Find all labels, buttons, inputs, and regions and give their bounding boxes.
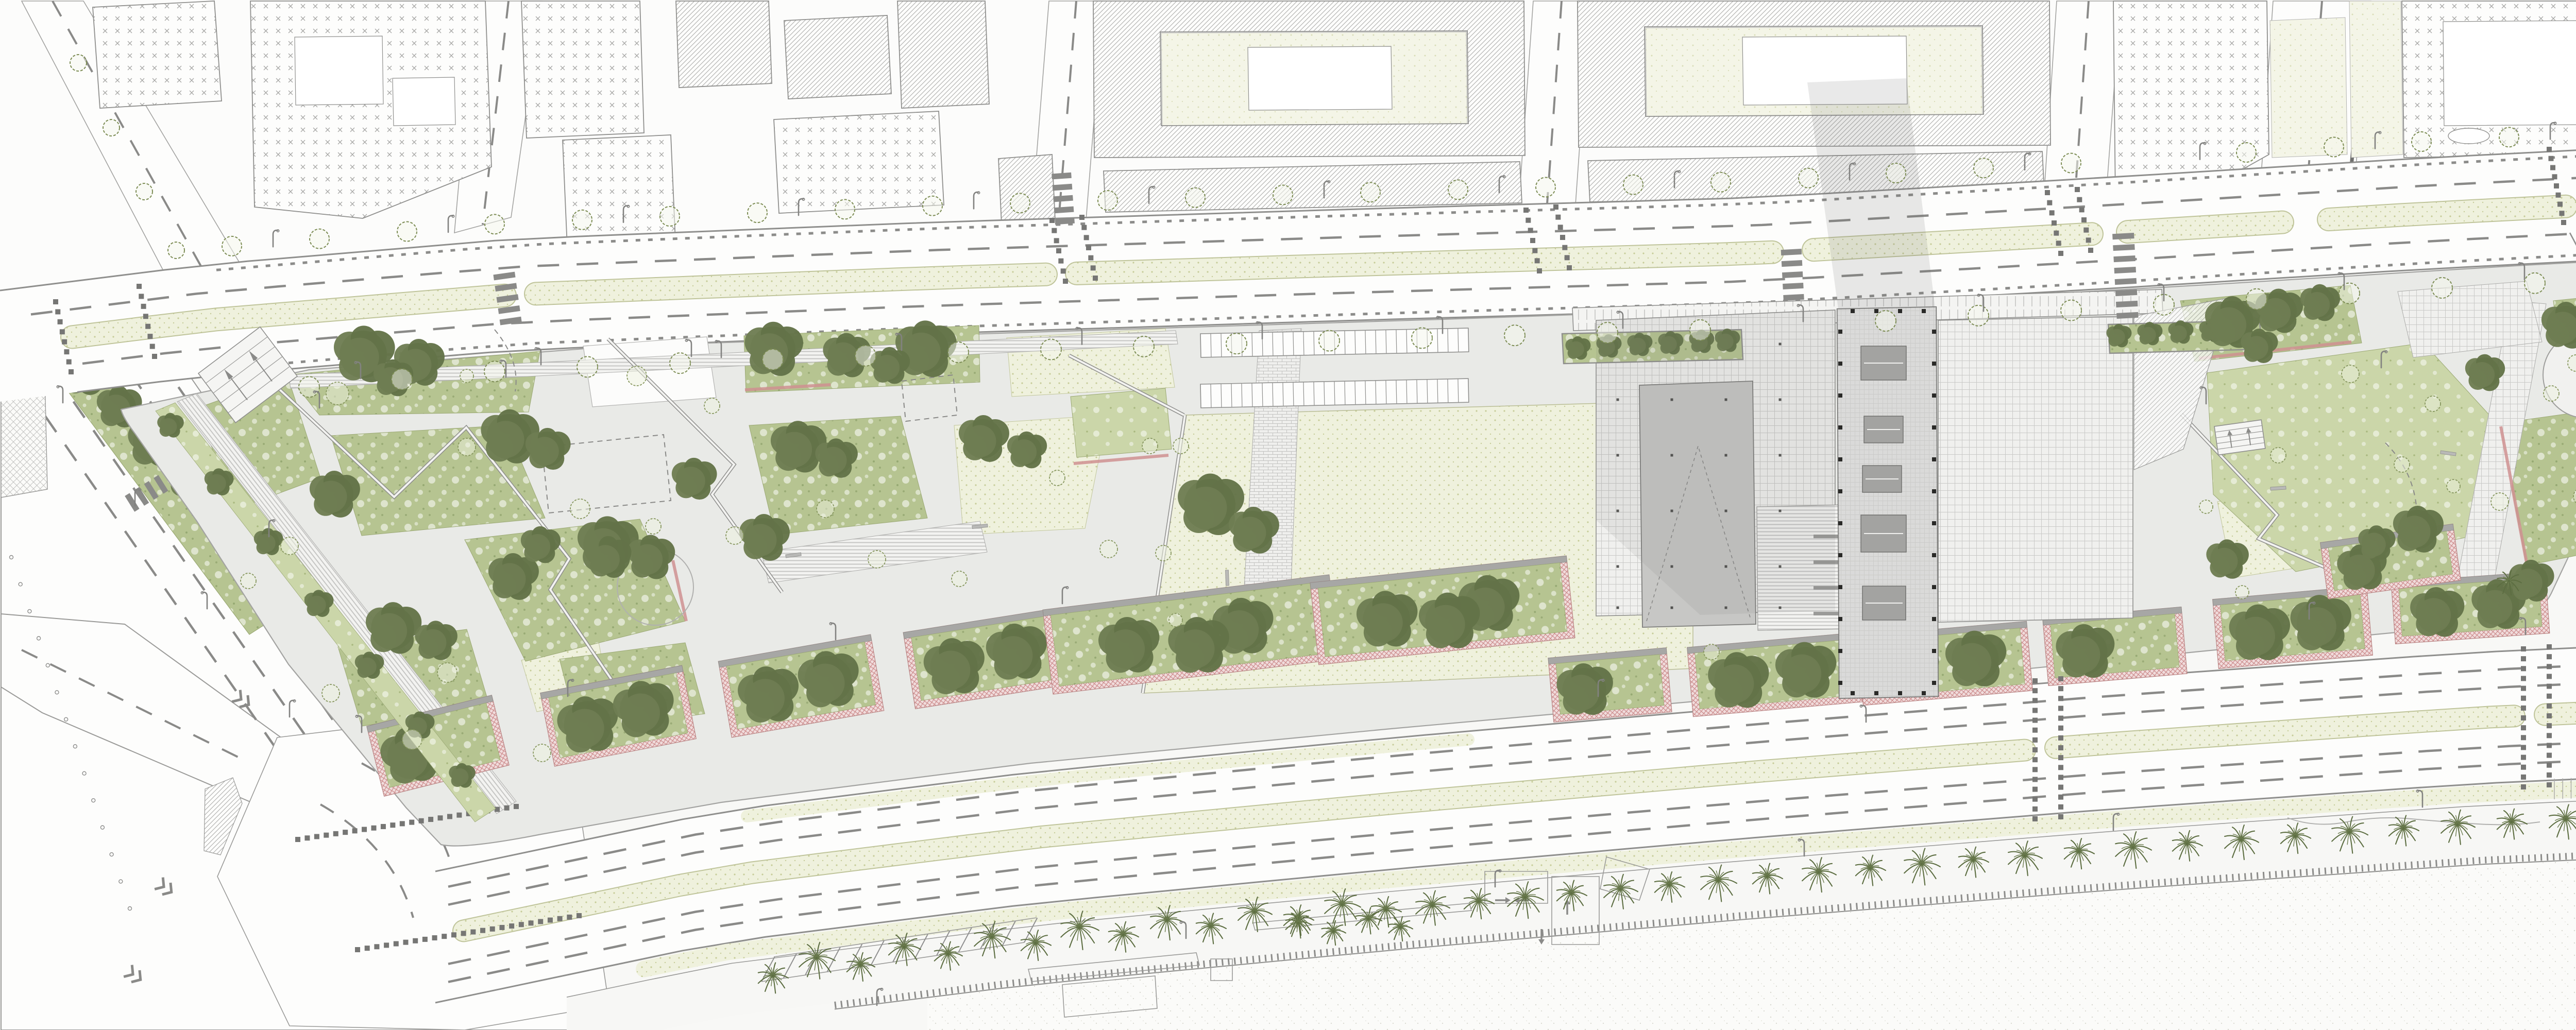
tower-column	[1932, 330, 1936, 334]
dotted-crossing	[2521, 646, 2526, 789]
street-tree	[1412, 328, 1432, 348]
street-tree	[1041, 339, 1061, 360]
tower-column	[1838, 362, 1842, 366]
parking-row	[1200, 379, 1469, 408]
tower-column	[1932, 393, 1936, 398]
tower-column	[1874, 309, 1878, 313]
street-tree	[748, 203, 767, 222]
street-tree	[835, 199, 855, 219]
tower-column	[1898, 691, 1902, 695]
inner-court	[1248, 46, 1392, 110]
dotted-crossing	[2547, 644, 2552, 787]
street-tree	[2246, 289, 2267, 310]
street-tree	[577, 356, 598, 377]
street-tree	[2061, 153, 2081, 173]
site-plan	[0, 0, 2576, 1030]
dotted-crossing	[2032, 678, 2038, 821]
shrub-tree	[241, 573, 256, 589]
shrub-tree	[817, 500, 834, 518]
shrub-tree	[2544, 386, 2559, 401]
shrub-tree	[2199, 500, 2213, 513]
tower-column	[1838, 489, 1842, 493]
context-building	[676, 1, 772, 88]
shrub-tree	[533, 744, 551, 762]
context-building	[521, 1, 644, 138]
street-tree	[2236, 143, 2256, 162]
context-oval	[2448, 128, 2489, 144]
street-tree	[1597, 322, 1618, 343]
street-tree	[855, 346, 876, 366]
street-tree	[1623, 175, 1643, 195]
shrub-tree	[2342, 365, 2359, 383]
street-tree	[168, 242, 184, 259]
shrub-tree	[2235, 586, 2249, 599]
courtyard	[2270, 18, 2347, 158]
street-tree	[762, 349, 783, 370]
street-tree	[1185, 188, 1205, 208]
shrub-tree	[437, 663, 457, 682]
shrub-tree	[726, 527, 743, 544]
tower-column	[1838, 649, 1842, 653]
plaza-column	[1671, 607, 1673, 609]
street-tree	[1098, 191, 1117, 210]
shrub-tree	[1049, 470, 1065, 486]
street-tree	[948, 342, 969, 363]
shrub-tree	[2491, 493, 2509, 510]
shrub-tree	[646, 519, 661, 534]
tower-column	[1932, 362, 1936, 366]
tower-column	[1932, 425, 1936, 430]
street-tree	[1886, 163, 1906, 183]
context-building	[93, 1, 222, 108]
tower-column	[1851, 309, 1855, 313]
tower-column	[1838, 425, 1842, 430]
street-tree	[1799, 168, 1818, 188]
shrub-tree	[1156, 545, 1171, 561]
shrub-tree	[281, 537, 298, 555]
tower-column	[1838, 393, 1842, 398]
street-tree	[670, 353, 690, 373]
shrub-tree	[460, 369, 473, 383]
street-tree	[1448, 180, 1468, 199]
street-tree	[1968, 305, 1989, 326]
shrub-tree	[2447, 479, 2460, 493]
tower-column	[1838, 553, 1842, 557]
street-tree	[2499, 127, 2519, 147]
dotted-crossing	[2058, 676, 2063, 819]
east-plaza	[1938, 316, 2133, 622]
tower-column	[1838, 585, 1842, 589]
street-tree	[572, 210, 592, 230]
street-tree	[222, 236, 242, 256]
context-building	[774, 111, 944, 213]
tower-column	[1932, 649, 1936, 653]
street-tree	[1361, 182, 1380, 202]
street-tree	[1536, 178, 1555, 197]
street-tree	[1133, 336, 1154, 357]
tower-column	[1898, 309, 1902, 313]
tower-column	[1838, 457, 1842, 461]
street-tree	[1226, 333, 1247, 354]
stairs	[2214, 420, 2265, 455]
street-tree	[485, 214, 504, 234]
shrub-tree	[1173, 438, 1189, 454]
site-plan-svg	[0, 0, 2576, 1030]
street-tree	[70, 55, 87, 71]
inner-court	[393, 77, 455, 126]
street-tree	[1974, 158, 1993, 178]
shrub-tree	[2270, 448, 2286, 463]
shrub-tree	[2425, 396, 2441, 411]
street-tree	[1504, 325, 1525, 346]
street-tree	[397, 222, 417, 242]
street-tree	[310, 229, 329, 249]
shrub-tree	[868, 551, 886, 568]
context-building	[897, 1, 989, 108]
shrub-tree	[2394, 457, 2410, 472]
shrub-tree	[1704, 644, 1719, 660]
shrub-tree	[952, 571, 967, 587]
plaza-column	[1617, 607, 1619, 609]
street-tree	[103, 119, 120, 136]
street-tree	[2339, 283, 2360, 304]
street-tree	[923, 196, 942, 216]
tower-column	[1838, 617, 1842, 621]
inner-court	[295, 36, 383, 105]
shrub-tree	[458, 438, 476, 456]
street-tree	[1319, 331, 1340, 351]
tower-column	[1932, 521, 1936, 525]
tower-column	[1932, 553, 1936, 557]
tower-column	[1932, 681, 1936, 685]
shrub-tree	[1142, 438, 1158, 454]
tower-column	[1874, 691, 1878, 695]
shrub-tree	[627, 366, 647, 386]
street-tree	[1010, 193, 1030, 213]
street-tree	[2324, 137, 2344, 157]
street-tree	[660, 207, 680, 226]
tower-column	[1932, 457, 1936, 461]
inner-court	[2443, 21, 2576, 126]
tower-column	[1851, 691, 1855, 695]
raised-planter	[2213, 586, 2373, 669]
street-tree	[1711, 173, 1731, 192]
tower-column	[1922, 691, 1926, 695]
street-tree	[1875, 311, 1896, 331]
tower-column	[1932, 617, 1936, 621]
tower-column	[1838, 681, 1842, 685]
shrub-tree	[570, 499, 590, 519]
tower-column	[1932, 489, 1936, 493]
tower-column	[1838, 330, 1842, 334]
street-tree	[1690, 320, 1710, 340]
median-strip	[2128, 222, 2282, 232]
street-tree	[484, 361, 505, 382]
shrub-tree	[704, 398, 720, 414]
tower-column	[1932, 585, 1936, 589]
tower-column	[1922, 309, 1926, 313]
street-tree	[1273, 185, 1293, 204]
median-strip	[2329, 207, 2566, 219]
street-tree	[2412, 132, 2431, 151]
plaza-column	[1617, 565, 1619, 568]
street-tree	[2524, 273, 2545, 294]
shrub-tree	[326, 382, 349, 405]
shrub-tree	[1169, 613, 1182, 627]
context-building	[784, 15, 891, 99]
street-tree	[2432, 278, 2452, 298]
shrub-tree	[402, 730, 422, 749]
street-tree	[299, 376, 319, 397]
street-tree	[392, 369, 412, 389]
raised-planter	[1548, 648, 1672, 723]
shrub-tree	[1100, 540, 1117, 558]
shrub-tree	[322, 684, 340, 702]
street-tree	[136, 183, 152, 200]
bench	[1225, 570, 1229, 586]
tower-column	[1838, 521, 1842, 525]
street-tree	[2061, 300, 2081, 321]
